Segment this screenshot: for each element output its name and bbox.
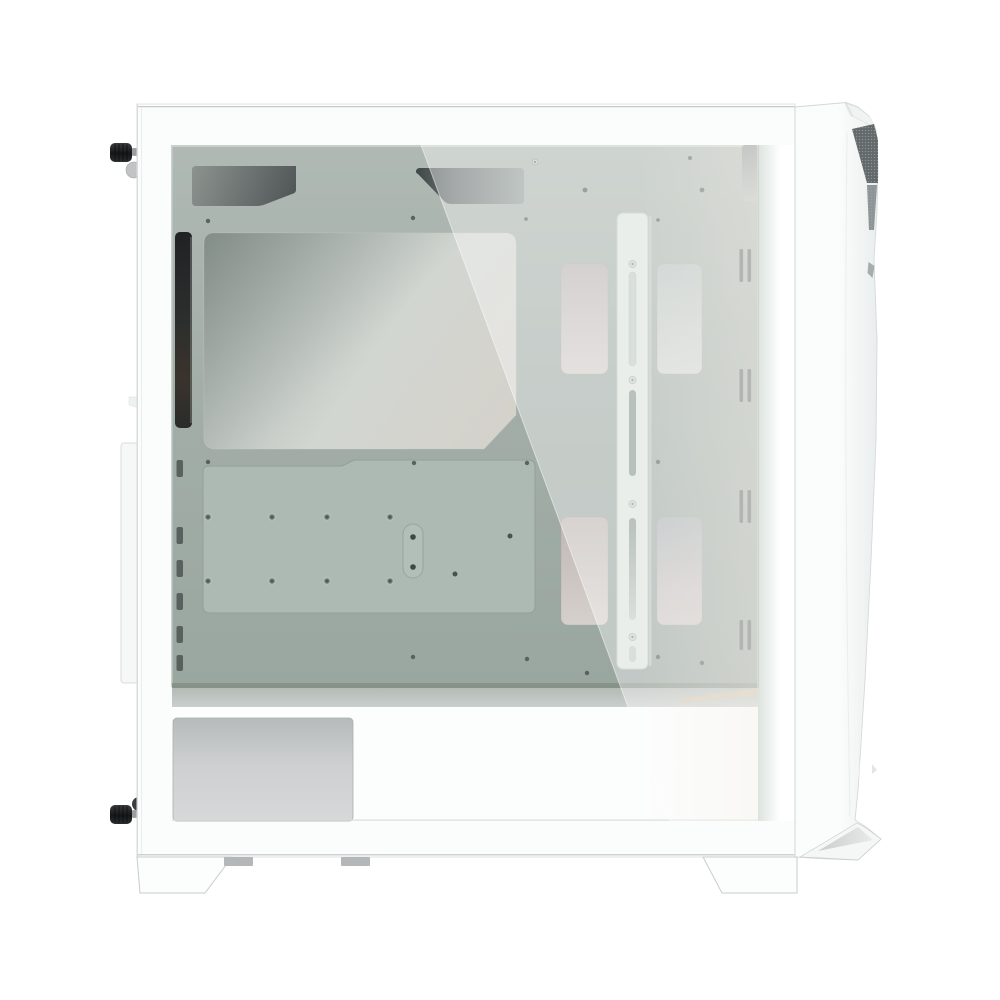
tray-service-panel <box>203 460 535 613</box>
slot-screw <box>410 564 416 570</box>
front-bottom-foot <box>703 857 797 893</box>
glass-window-interior <box>171 145 795 821</box>
top-edge-line <box>137 106 795 107</box>
thumbscrew-knob <box>110 143 132 162</box>
panel-screw <box>508 534 513 539</box>
bezel-seam <box>794 107 795 857</box>
case-feet <box>137 857 797 893</box>
bottom-edge-line <box>137 854 795 856</box>
rear-exhaust-strip <box>175 232 192 428</box>
bottom-tab <box>224 857 253 866</box>
psu-side-plate <box>173 718 353 821</box>
front-inner-wall <box>758 145 795 821</box>
rear-lip-line <box>141 108 142 854</box>
bezel-edge-notch <box>872 764 877 774</box>
rear-expansion-bulge <box>121 443 139 683</box>
rear-edge-line <box>137 104 139 857</box>
bottom-tab <box>341 857 370 866</box>
rear-strip-highlight <box>190 237 192 423</box>
thumbscrew-knob <box>110 805 132 824</box>
slot-screw <box>410 534 416 540</box>
pc-case-illustration <box>0 0 1000 1000</box>
front-bezel <box>794 100 884 862</box>
product-photo-white-pc-case <box>0 0 1000 1000</box>
panel-screw <box>453 572 458 577</box>
rear-foot <box>137 857 232 893</box>
glass-haze <box>640 145 758 821</box>
cable-tie-slot <box>403 524 423 578</box>
interior-left-edge <box>171 145 173 687</box>
